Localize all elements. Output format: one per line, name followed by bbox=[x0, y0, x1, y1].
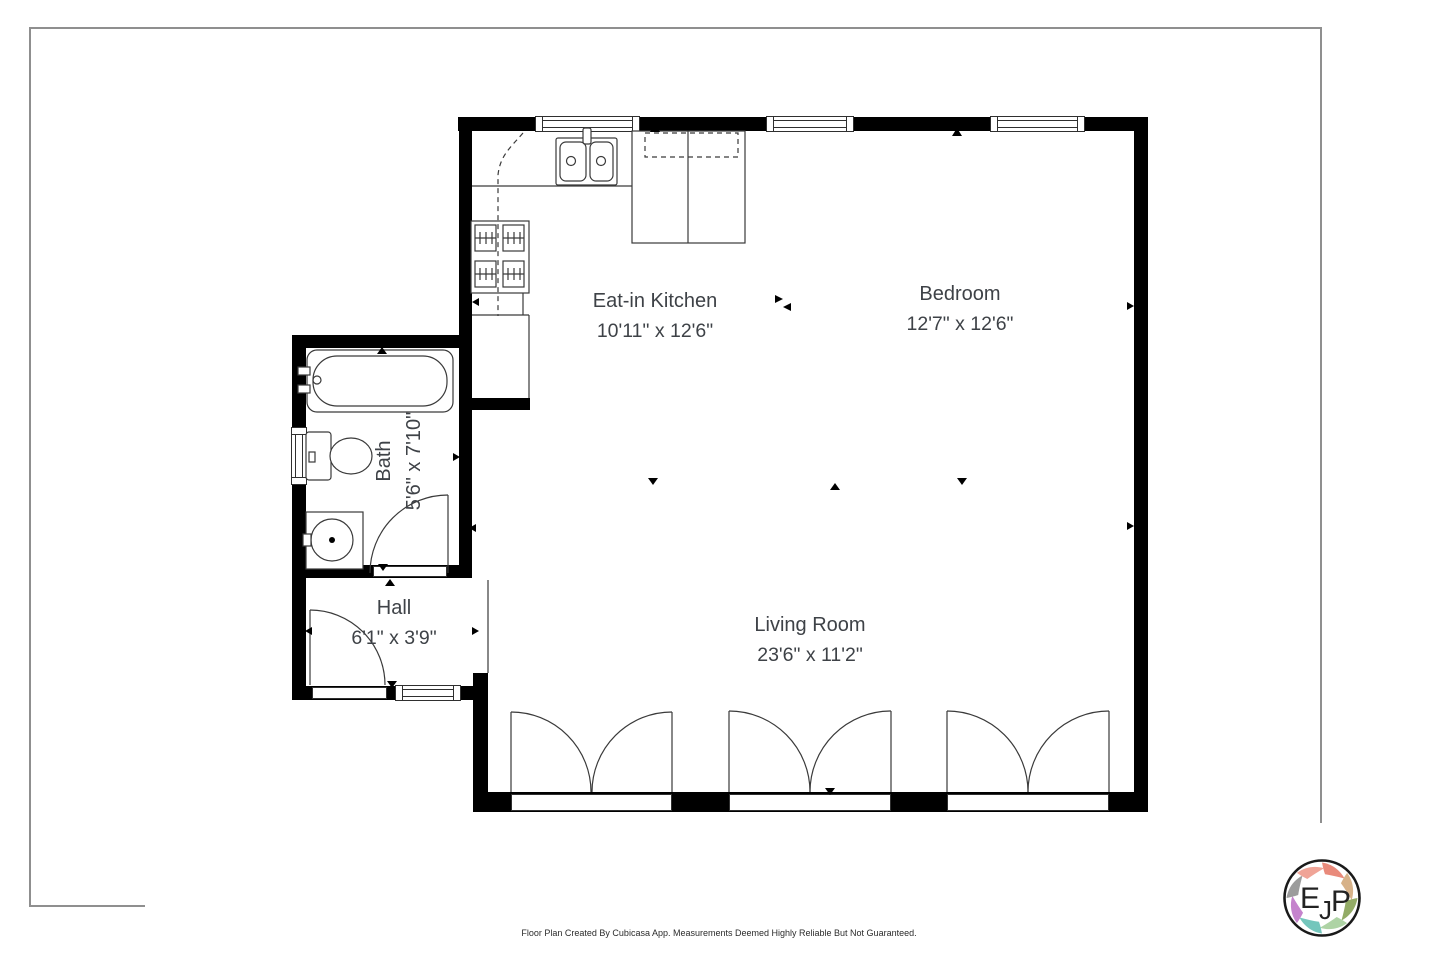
stove-icon bbox=[471, 221, 529, 293]
room-name: Bath bbox=[369, 412, 399, 511]
room-name: Living Room bbox=[754, 610, 865, 640]
faucet-icon bbox=[583, 128, 591, 144]
room-name: Hall bbox=[351, 593, 436, 623]
floor-plan-page: Eat-in Kitchen 10'11" x 12'6" Bedroom 12… bbox=[0, 0, 1440, 959]
toilet-icon bbox=[306, 432, 372, 480]
kitchen-sink bbox=[556, 128, 617, 185]
disclaimer-text: Floor Plan Created By Cubicasa App. Meas… bbox=[521, 928, 916, 938]
room-label-living: Living Room 23'6" x 11'2" bbox=[754, 610, 865, 670]
room-label-bath: Bath 5'6" x 7'10" bbox=[369, 412, 429, 511]
room-dimensions: 6'1" x 3'9" bbox=[351, 623, 436, 653]
bath-sink-icon bbox=[303, 512, 363, 569]
bathtub-icon bbox=[298, 350, 453, 412]
french-door-swing bbox=[511, 712, 672, 792]
plan-linework bbox=[0, 0, 1440, 959]
room-dimensions: 12'7" x 12'6" bbox=[907, 309, 1014, 339]
room-dimensions: 23'6" x 11'2" bbox=[754, 640, 865, 670]
room-label-hall: Hall 6'1" x 3'9" bbox=[351, 593, 436, 653]
logo-letter-e: E bbox=[1300, 882, 1320, 915]
room-label-bedroom: Bedroom 12'7" x 12'6" bbox=[907, 279, 1014, 339]
french-door-swing bbox=[729, 711, 891, 792]
ejp-logo: E J P bbox=[1282, 858, 1362, 938]
room-dimensions: 5'6" x 7'10" bbox=[399, 412, 429, 511]
room-label-kitchen: Eat-in Kitchen 10'11" x 12'6" bbox=[593, 286, 718, 346]
french-door-swing bbox=[947, 711, 1109, 792]
room-name: Bedroom bbox=[907, 279, 1014, 309]
room-dimensions: 10'11" x 12'6" bbox=[593, 316, 718, 346]
logo-letter-p: P bbox=[1331, 885, 1351, 918]
room-name: Eat-in Kitchen bbox=[593, 286, 718, 316]
